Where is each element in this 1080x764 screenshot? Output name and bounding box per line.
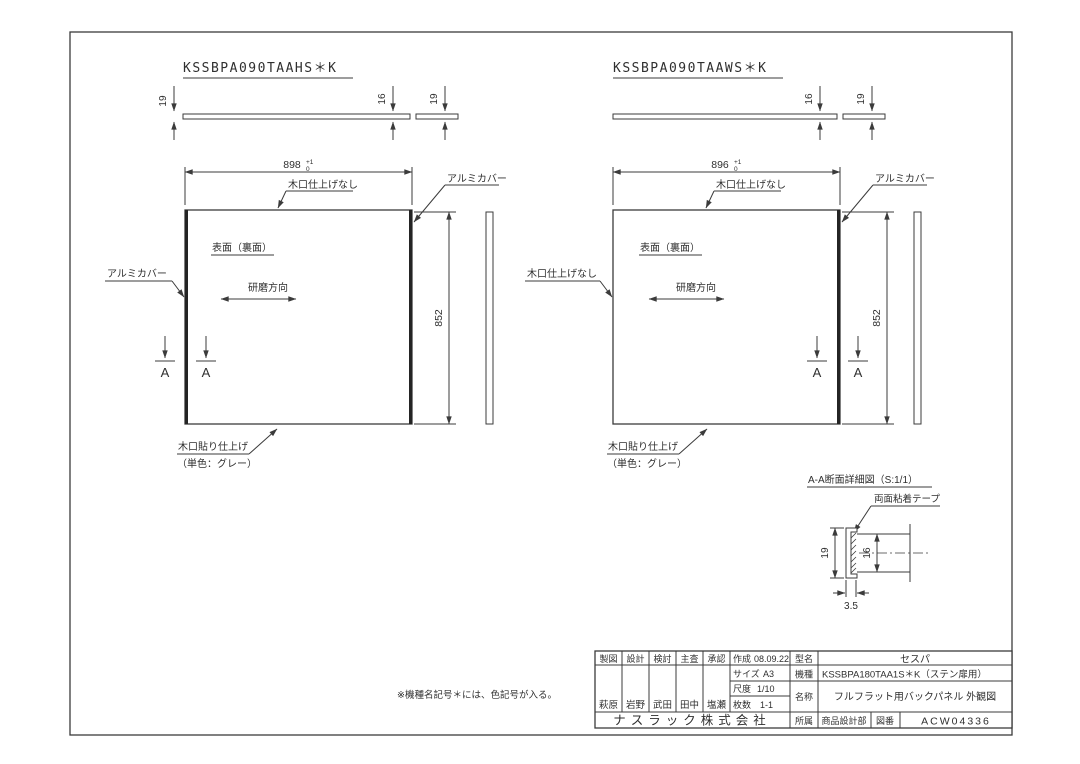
left-cover-left-dim: 19 — [158, 95, 169, 107]
model-value: セスパ — [900, 654, 930, 666]
sign-header-chief: 主査 — [680, 653, 698, 664]
machine-value: KSSBPA180TAA1S＊K（ステン扉用） — [822, 669, 987, 681]
sheets-value: 1-1 — [760, 700, 773, 710]
product-name-label: 名称 — [795, 691, 813, 702]
left-bottom-edge-label2: （単色：グレー） — [177, 457, 257, 470]
scale-label: 尺度 — [733, 683, 751, 694]
left-panel-drawing: KSSBPA090TAAHS＊K 19 16 19 898 +1 0 — [105, 61, 507, 470]
created-value: 08.09.22 — [754, 654, 789, 664]
right-panel-bottom-edge-callout: 木口貼り仕上げ （単色：グレー） — [607, 429, 707, 470]
right-panel-height-dimension: 852 — [842, 212, 894, 424]
left-panel-side-view — [486, 212, 493, 424]
section-depth-dim: 3.5 — [844, 601, 858, 612]
right-bottom-edge-label2: （単色：グレー） — [607, 457, 687, 470]
left-thickness-dim: 16 — [377, 93, 388, 105]
left-top-edge-label: 木口仕上げなし — [288, 178, 358, 191]
sign-header-approval: 承認 — [707, 653, 725, 664]
right-thickness-dim: 16 — [804, 93, 815, 105]
size-value: A3 — [763, 669, 774, 679]
left-polish-label: 研磨方向 — [248, 281, 288, 294]
right-bottom-edge-label1: 木口貼り仕上げ — [608, 440, 678, 453]
right-panel-surface-label-group: 表面（裏面） — [639, 241, 702, 255]
sheets-label: 枚数 — [733, 699, 751, 710]
sign-header-design: 設計 — [626, 653, 644, 664]
model-label: 型名 — [795, 653, 813, 664]
section-detail-title: A-A断面詳細図（S:1/1） — [808, 473, 918, 486]
left-surface-label: 表面（裏面） — [212, 241, 272, 254]
right-surface-label: 表面（裏面） — [640, 241, 700, 254]
left-width-tol-plus: +1 — [306, 159, 314, 166]
left-panel-profile-view: 19 16 19 — [158, 86, 458, 140]
cad-drawing: KSSBPA090TAAHS＊K 19 16 19 898 +1 0 — [0, 0, 1080, 764]
right-right-cover-label: アルミカバー — [875, 173, 935, 185]
section-mark-a3: A — [813, 365, 822, 380]
drawing-no-label: 図番 — [876, 715, 894, 726]
left-width-dim: 898 — [283, 159, 301, 171]
tape-label: 両面粘着テープ — [874, 493, 940, 505]
size-label: サイズ — [733, 668, 760, 679]
sign-name-3: 武田 — [653, 699, 672, 711]
drawing-sheet: KSSBPA090TAAHS＊K 19 16 19 898 +1 0 — [0, 0, 1080, 764]
section-dim-16: 16 — [862, 534, 877, 572]
scale-value: 1/10 — [757, 684, 775, 694]
section-mark-a4: A — [854, 365, 863, 380]
right-panel-drawing: KSSBPA090TAAWS＊K 16 19 896 +1 0 木口仕上げ — [525, 61, 935, 470]
sign-name-1: 萩原 — [599, 700, 618, 711]
left-panel-bottom-edge-callout: 木口貼り仕上げ （単色：グレー） — [177, 429, 277, 470]
right-left-edge-label: 木口仕上げなし — [527, 267, 597, 280]
machine-label: 機種 — [795, 669, 813, 680]
drawing-no-value: ACW04336 — [921, 716, 991, 728]
right-polish-label: 研磨方向 — [676, 281, 716, 294]
sign-name-5: 塩瀬 — [707, 699, 727, 711]
title-block: 製図 設計 検討 主査 承認 萩原 岩野 武田 田中 塩瀬 作成 08.09.2… — [595, 651, 1012, 728]
left-right-cover-label: アルミカバー — [447, 173, 507, 185]
dept-label: 所属 — [795, 716, 813, 726]
right-panel-left-edge-callout: 木口仕上げなし — [525, 267, 612, 297]
section-height-dim: 19 — [820, 547, 831, 559]
right-cover-right-dim: 19 — [856, 93, 867, 105]
left-width-tol-minus: 0 — [306, 166, 310, 173]
left-height-dim: 852 — [433, 309, 445, 327]
section-mark-a2: A — [202, 365, 211, 380]
left-panel-top-edge-callout: 木口仕上げなし — [278, 178, 358, 208]
section-dim-3-5: 3.5 — [833, 580, 869, 612]
section-dim-19: 19 — [820, 528, 844, 578]
section-detail: A-A断面詳細図（S:1/1） 両面粘着テープ — [807, 473, 940, 612]
right-panel-profile-view: 16 19 — [613, 86, 885, 140]
left-panel-height-dimension: 852 — [414, 212, 456, 424]
right-width-tol-minus: 0 — [734, 166, 738, 173]
product-name-value: フルフラット用バックパネル 外観図 — [834, 690, 996, 703]
tape-hatching — [851, 533, 856, 573]
tape-callout: 両面粘着テープ — [854, 493, 940, 532]
dept-value: 商品設計部 — [821, 715, 866, 726]
section-mark-a1: A — [161, 365, 170, 380]
left-bottom-edge-label1: 木口貼り仕上げ — [178, 440, 248, 453]
sign-name-4: 田中 — [680, 699, 699, 711]
company-name: ナスラック株式会社 — [613, 713, 771, 728]
left-panel-surface-label-group: 表面（裏面） — [211, 241, 274, 255]
right-width-tol-plus: +1 — [734, 159, 742, 166]
right-panel-code: KSSBPA090TAAWS＊K — [613, 61, 767, 76]
left-panel-code: KSSBPA090TAAHS＊K — [183, 61, 337, 76]
right-panel-side-view — [914, 212, 921, 424]
left-panel-left-cover-callout: アルミカバー — [105, 268, 184, 297]
sign-header-review: 検討 — [653, 653, 671, 664]
sign-header-drafting: 製図 — [599, 653, 617, 664]
color-code-note: ※機種名記号＊には、色記号が入る。 — [397, 689, 557, 701]
right-top-edge-label: 木口仕上げなし — [716, 178, 786, 191]
left-cover-right-dim: 19 — [429, 93, 440, 105]
cover-channel-profile — [846, 528, 857, 578]
right-height-dim: 852 — [871, 309, 883, 327]
right-width-dim: 896 — [711, 159, 729, 171]
section-panel-dim: 16 — [862, 547, 873, 559]
created-label: 作成 — [733, 653, 751, 664]
right-panel-top-edge-callout: 木口仕上げなし — [706, 178, 786, 208]
left-left-edge-label: アルミカバー — [107, 268, 167, 280]
sign-name-2: 岩野 — [626, 699, 646, 711]
